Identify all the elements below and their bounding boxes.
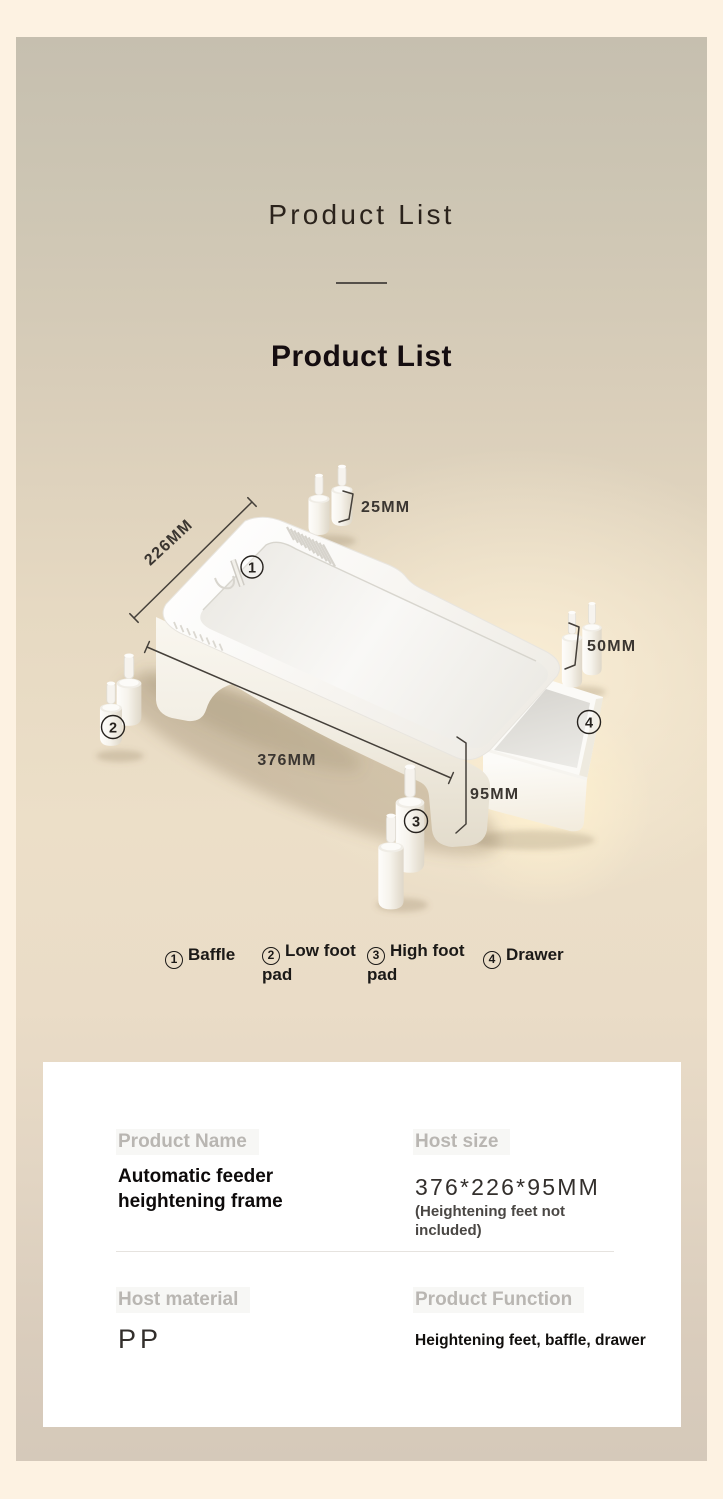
legend-item-drawer: 4Drawer bbox=[483, 945, 564, 969]
product-infographic-page: Product List Product List bbox=[0, 0, 723, 1499]
dim-width-label: 226MM bbox=[141, 516, 196, 569]
marker-drawer: 4 bbox=[578, 711, 601, 734]
display-title: Product List bbox=[0, 199, 723, 231]
dim-length-label: 376MM bbox=[257, 752, 316, 769]
legend-item-low-foot-pad: 2Low foot pad bbox=[262, 941, 364, 984]
dim-high-foot-label: 50MM bbox=[587, 638, 636, 655]
product-function-label: Product Function bbox=[413, 1287, 584, 1313]
host-material-label: Host material bbox=[116, 1287, 250, 1313]
svg-text:4: 4 bbox=[585, 716, 593, 732]
legend-item-high-foot-pad: 3High foot pad bbox=[367, 941, 475, 984]
product-diagram: 226MM 25MM 50MM 95MM 376MM 1 2 3 4 bbox=[0, 430, 723, 930]
product-name-label: Product Name bbox=[116, 1129, 259, 1155]
product-function-value: Heightening feet, baffle, drawer bbox=[415, 1332, 646, 1350]
title-divider bbox=[336, 282, 387, 284]
svg-text:2: 2 bbox=[109, 721, 117, 737]
svg-text:3: 3 bbox=[412, 815, 420, 831]
host-material-value: PP bbox=[118, 1324, 162, 1355]
legend-num-4: 4 bbox=[483, 951, 501, 969]
dim-low-foot-label: 25MM bbox=[361, 499, 410, 516]
section-title: Product List bbox=[0, 340, 723, 374]
legend-num-3: 3 bbox=[367, 947, 385, 965]
legend-label-baffle: Baffle bbox=[188, 945, 235, 964]
card-divider bbox=[116, 1251, 614, 1252]
dim-height-label: 95MM bbox=[470, 786, 519, 803]
legend-item-baffle: 1Baffle bbox=[165, 945, 235, 969]
host-size-label: Host size bbox=[413, 1129, 510, 1155]
host-size-value: 376*226*95MM bbox=[415, 1174, 600, 1201]
legend-label-drawer: Drawer bbox=[506, 945, 564, 964]
legend-num-1: 1 bbox=[165, 951, 183, 969]
legend-num-2: 2 bbox=[262, 947, 280, 965]
product-name-value: Automatic feeder heightening frame bbox=[118, 1165, 343, 1214]
host-size-note: (Heightening feet not included) bbox=[415, 1203, 615, 1241]
marker-low-foot-pad: 2 bbox=[102, 716, 125, 739]
marker-high-foot-pad: 3 bbox=[405, 810, 428, 833]
low-foot-pad-top-pair bbox=[309, 465, 353, 535]
spec-card: Product Name Automatic feeder heightenin… bbox=[43, 1062, 681, 1427]
svg-text:1: 1 bbox=[248, 561, 256, 577]
marker-baffle: 1 bbox=[241, 556, 263, 578]
